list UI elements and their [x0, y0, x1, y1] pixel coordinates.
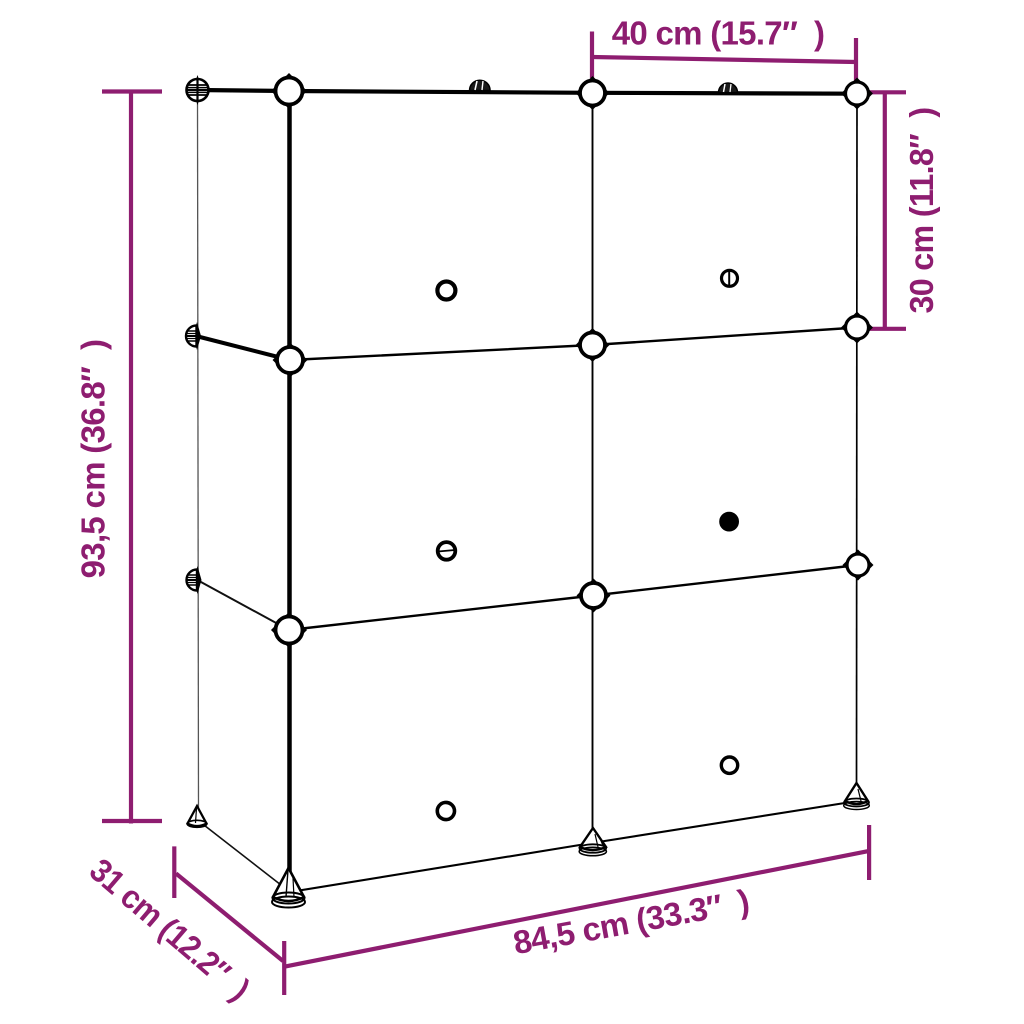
svg-text:40 cm (15.7″ ): 40 cm (15.7″ )	[612, 15, 825, 52]
svg-text:30 cm (11.8″ ): 30 cm (11.8″ )	[903, 108, 940, 314]
svg-text:93,5 cm (36.8″ ): 93,5 cm (36.8″ )	[75, 340, 112, 579]
